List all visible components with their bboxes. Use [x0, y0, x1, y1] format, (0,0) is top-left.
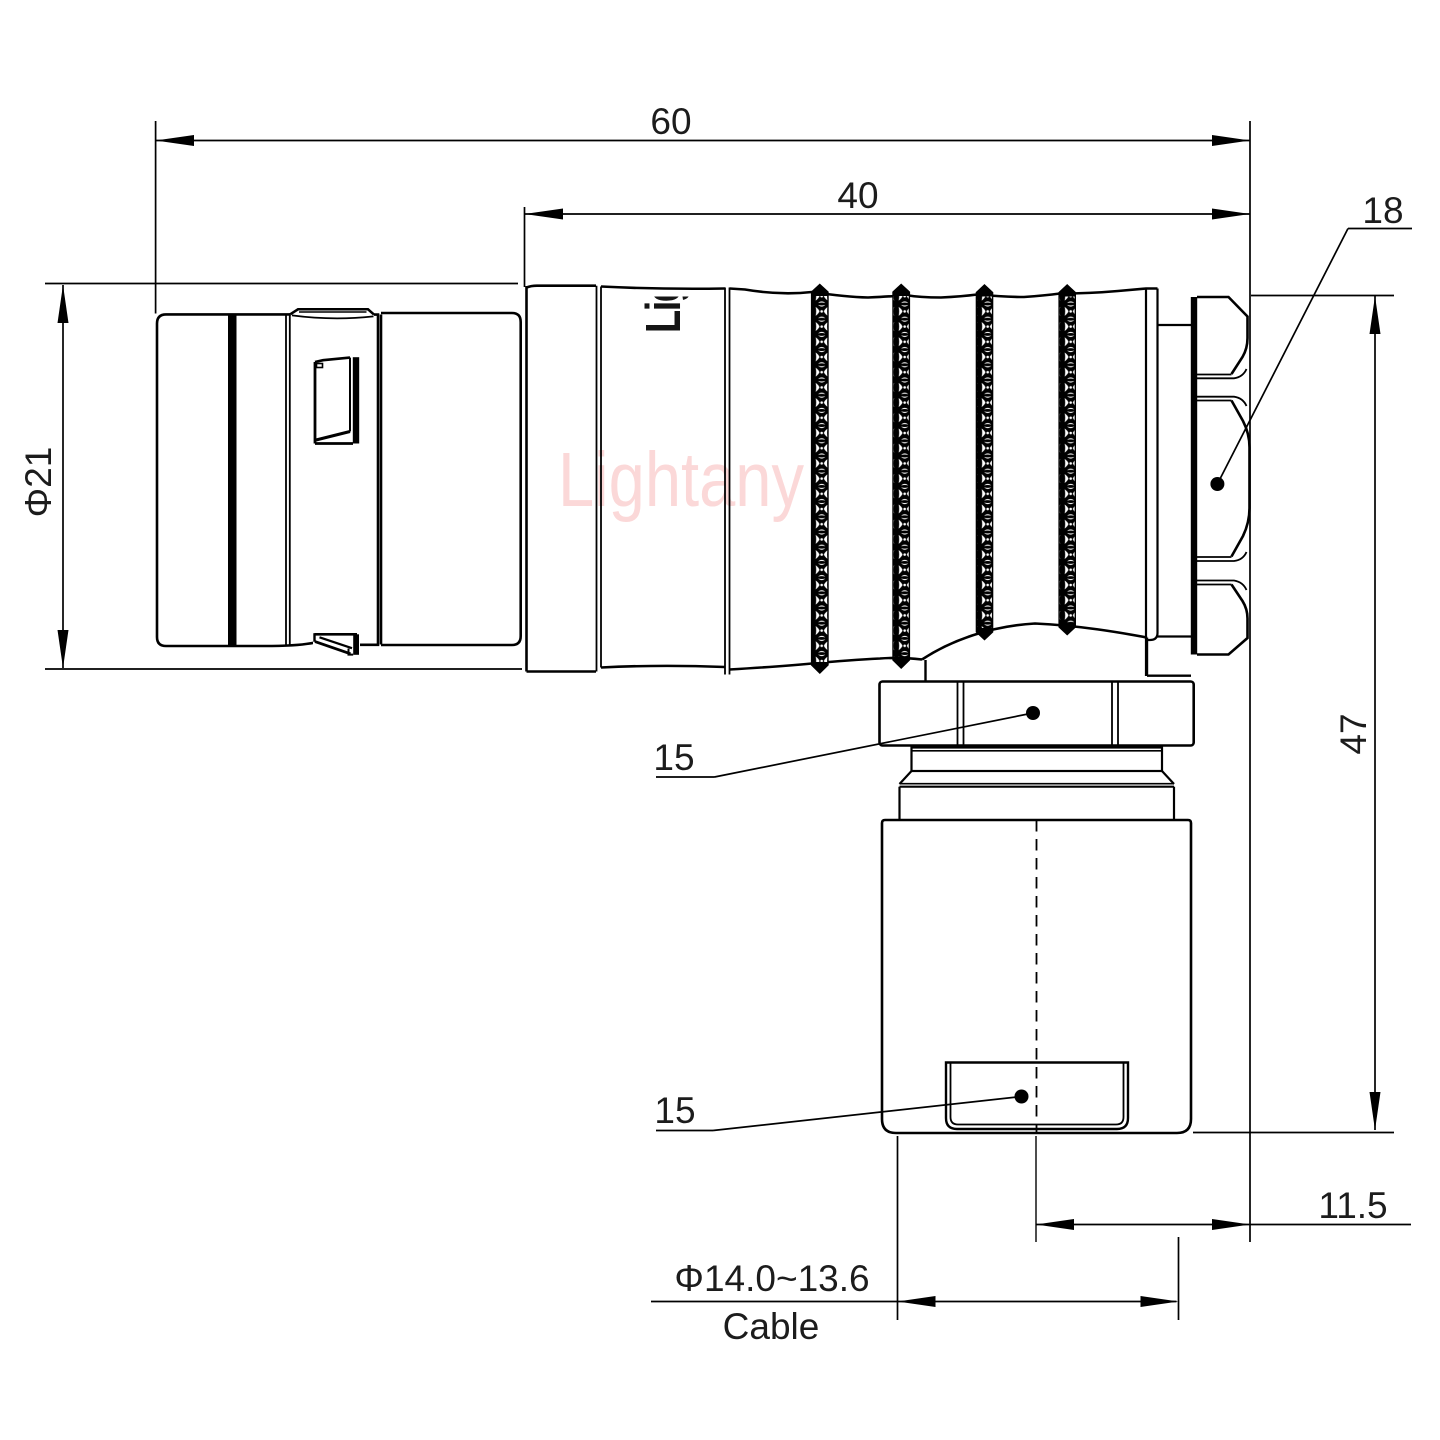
svg-text:15: 15	[653, 737, 694, 778]
svg-text:15: 15	[654, 1090, 695, 1131]
svg-text:60: 60	[650, 101, 691, 142]
svg-text:Lightany: Lightany	[558, 437, 804, 523]
svg-text:18: 18	[1362, 190, 1403, 231]
svg-text:40: 40	[837, 175, 878, 216]
svg-text:Cable: Cable	[723, 1306, 820, 1347]
svg-text:Φ21: Φ21	[18, 447, 59, 518]
svg-text:11.5: 11.5	[1318, 1185, 1387, 1226]
svg-text:Ligh: Ligh	[636, 259, 691, 333]
svg-text:Φ14.0~13.6: Φ14.0~13.6	[674, 1258, 869, 1299]
svg-text:47: 47	[1333, 713, 1374, 754]
